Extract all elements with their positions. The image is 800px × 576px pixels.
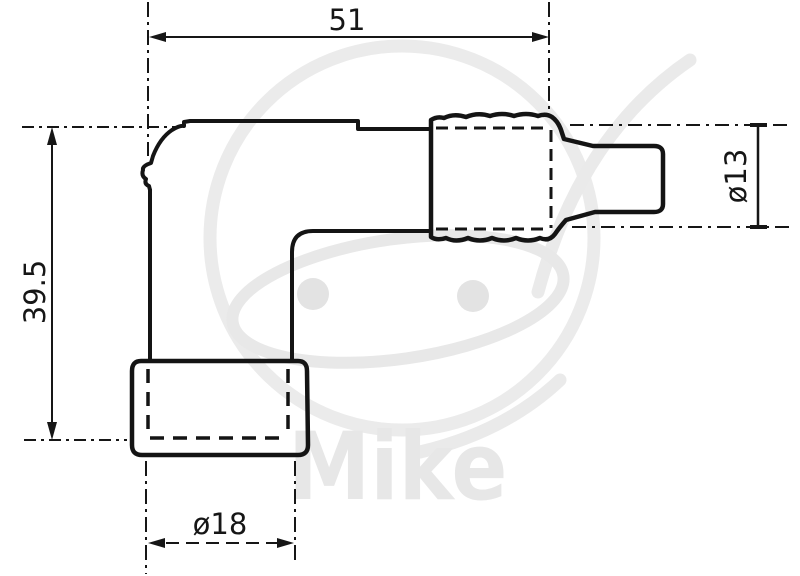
- cap-top-edge: [142, 121, 431, 190]
- dimension-label-18: ø18: [193, 507, 248, 541]
- cap-rubber-shroud: [431, 114, 663, 241]
- drawing-canvas: Mike 51 39.5 ø13 ø: [0, 0, 800, 576]
- hidden-lines: [148, 128, 551, 438]
- watermark-swoosh-top-right: [538, 60, 690, 292]
- cap-boot: [132, 361, 308, 455]
- arrowhead-51-left: [149, 32, 166, 42]
- dimension-label-13: ø13: [719, 149, 753, 204]
- dimension-label-51: 51: [329, 3, 366, 37]
- arrowhead-39-bottom: [47, 422, 57, 440]
- dimension-13: ø13: [719, 125, 767, 227]
- watermark-text: Mike: [288, 412, 508, 521]
- arrowhead-18-right: [277, 538, 294, 548]
- watermark-right-eye: [457, 280, 489, 312]
- arrowhead-18-left: [148, 538, 165, 548]
- dimension-18: ø18: [148, 507, 294, 548]
- watermark-left-eye: [297, 278, 329, 310]
- arrowhead-51-right: [532, 32, 549, 42]
- arrowhead-39-top: [47, 127, 57, 145]
- dimension-label-39-5: 39.5: [18, 260, 52, 325]
- dimension-51: 51: [149, 3, 549, 42]
- dimension-39-5: 39.5: [18, 127, 57, 440]
- spark-plug-cap-diagram: Mike 51 39.5 ø13 ø: [0, 0, 800, 576]
